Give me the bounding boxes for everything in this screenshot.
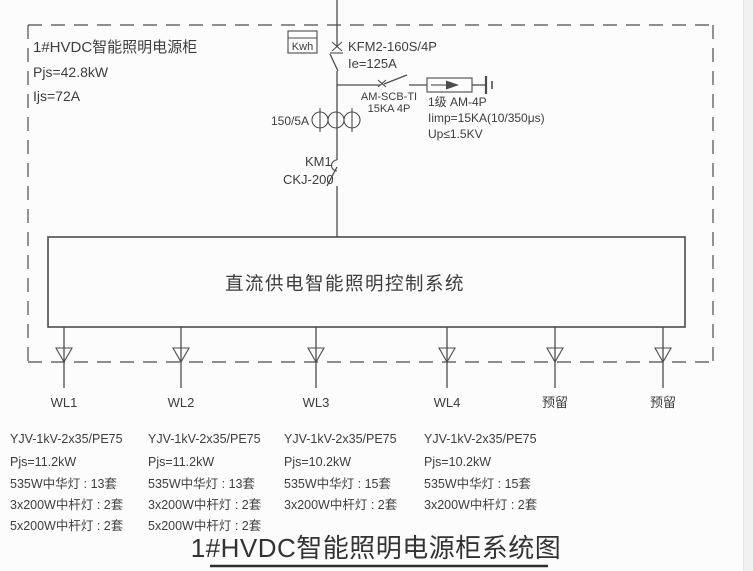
feeder-wl4: WL4	[434, 327, 461, 410]
spd-device-icon	[427, 78, 472, 92]
kwh-meter-label: Kwh	[292, 41, 313, 53]
single-line-diagram: 1#HVDC智能照明电源柜 Pjs=42.8kW Ijs=72A Kwh KFM…	[0, 0, 753, 571]
contactor-model: CKJ-200	[283, 172, 334, 187]
feeder-label: WL4	[434, 395, 461, 410]
circuit-load: 3x200W中杆灯 : 2套	[284, 497, 398, 512]
feeder-spare-1: 预留	[542, 327, 568, 410]
circuit-load: 3x200W中杆灯 : 2套	[10, 497, 124, 512]
circuit-column-1: YJV-1kV-2x35/PE75 Pjs=11.2kW 535W中华灯 : 1…	[10, 432, 124, 533]
circuit-load: 3x200W中杆灯 : 2套	[148, 497, 262, 512]
circuit-cable: YJV-1kV-2x35/PE75	[148, 432, 261, 446]
feeder-label: WL3	[303, 395, 330, 410]
circuit-column-2: YJV-1kV-2x35/PE75 Pjs=11.2kW 535W中华灯 : 1…	[148, 432, 262, 533]
circuit-cable: YJV-1kV-2x35/PE75	[284, 432, 397, 446]
drawing-sheet: 1#HVDC智能照明电源柜 Pjs=42.8kW Ijs=72A Kwh KFM…	[0, 0, 753, 571]
feeder-wl3: WL3	[303, 327, 330, 410]
feeder-spare-2: 预留	[650, 327, 676, 410]
spd-class: 1级 AM-4P	[428, 95, 487, 109]
main-breaker-icon	[330, 42, 343, 160]
feeder-label: WL1	[51, 395, 78, 410]
cabinet-boundary	[28, 25, 713, 362]
kwh-meter-icon: Kwh	[288, 31, 317, 53]
contactor-name: KM1	[305, 154, 332, 169]
circuit-power: Pjs=10.2kW	[424, 455, 491, 469]
drawing-title: 1#HVDC智能照明电源柜系统图	[191, 533, 562, 563]
circuit-power: Pjs=11.2kW	[148, 455, 214, 469]
circuit-column-4: YJV-1kV-2x35/PE75 Pjs=10.2kW 535W中华灯 : 1…	[424, 432, 538, 512]
cabinet-ijs: Ijs=72A	[33, 88, 81, 104]
scan-edge	[743, 0, 753, 571]
main-breaker-model: KFM2-160S/4P	[348, 39, 437, 54]
spd-switch-rating: 15KA 4P	[368, 103, 411, 115]
circuit-load: 5x200W中杆灯 : 2套	[148, 518, 262, 533]
circuit-cable: YJV-1kV-2x35/PE75	[424, 432, 537, 446]
feeder-wl1: WL1	[51, 327, 78, 410]
feeder-label: 预留	[542, 395, 568, 410]
circuit-load: 535W中华灯 : 13套	[148, 476, 255, 491]
main-breaker-current: Ie=125A	[348, 56, 397, 71]
circuit-power: Pjs=10.2kW	[284, 455, 351, 469]
feeder-label: WL2	[168, 395, 195, 410]
circuit-load: 5x200W中杆灯 : 2套	[10, 518, 124, 533]
spd-iimp: Iimp=15KA(10/350μs)	[428, 111, 545, 125]
circuit-load: 535W中华灯 : 15套	[284, 476, 391, 491]
feeder-wl2: WL2	[168, 327, 195, 410]
cabinet-name: 1#HVDC智能照明电源柜	[33, 38, 197, 56]
current-transformer-icon	[312, 108, 360, 132]
circuit-load: 3x200W中杆灯 : 2套	[424, 497, 538, 512]
ct-ratio: 150/5A	[271, 114, 309, 128]
spd-switch-model: AM-SCB-TI	[361, 91, 417, 103]
control-system-label: 直流供电智能照明控制系统	[225, 273, 465, 294]
circuit-load: 535W中华灯 : 13套	[10, 476, 117, 491]
circuit-column-3: YJV-1kV-2x35/PE75 Pjs=10.2kW 535W中华灯 : 1…	[284, 432, 398, 512]
circuit-cable: YJV-1kV-2x35/PE75	[10, 432, 123, 446]
circuit-load: 535W中华灯 : 15套	[424, 476, 531, 491]
outgoing-feeders: WL1 WL2 WL3 WL4 预留	[51, 327, 676, 410]
feeder-label: 预留	[650, 395, 676, 410]
circuit-power: Pjs=11.2kW	[10, 455, 76, 469]
spd-up: Up≤1.5KV	[428, 127, 483, 141]
cabinet-pjs: Pjs=42.8kW	[33, 64, 109, 80]
